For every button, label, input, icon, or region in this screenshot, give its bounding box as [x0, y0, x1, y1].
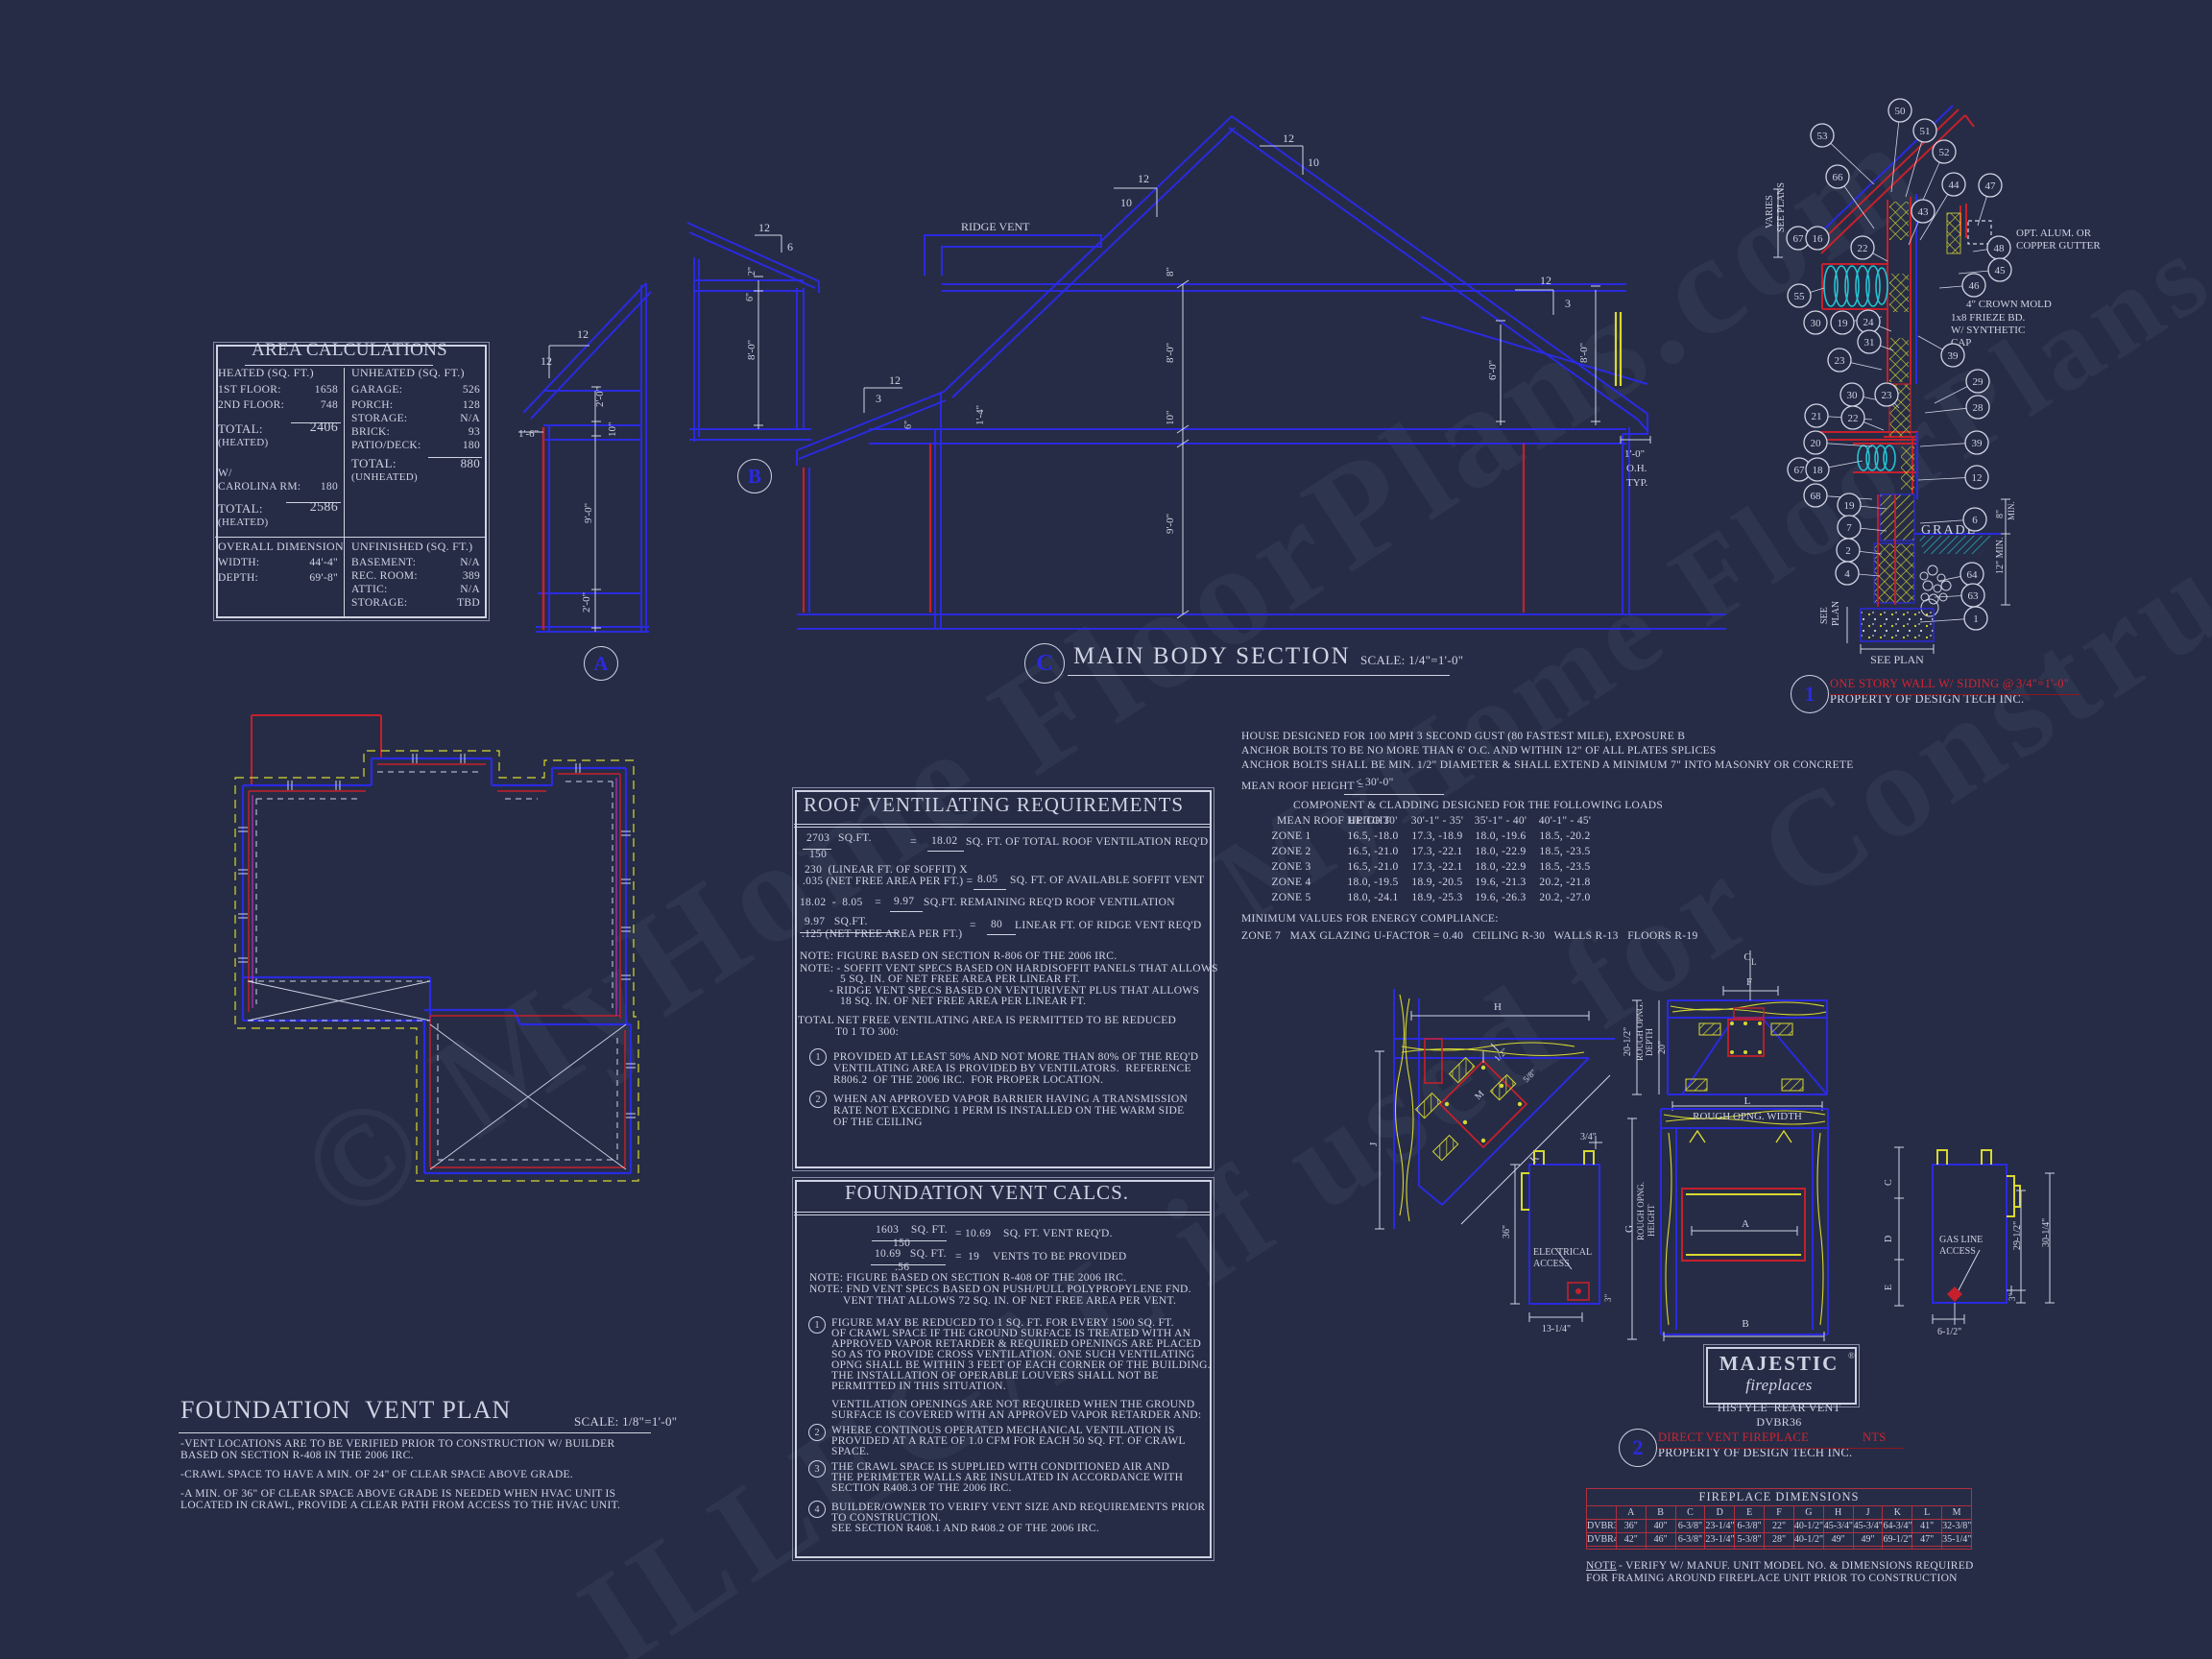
text-label: DEPTH: [218, 572, 258, 584]
text-label: 1ST FLOOR: [218, 384, 281, 396]
rule-line [794, 1214, 1211, 1215]
text-label: SECTION R408.3 OF THE 2006 IRC. [831, 1482, 1012, 1494]
text-label: PATIO/DECK: [351, 440, 421, 451]
detail-c-badge: C [1024, 643, 1065, 684]
cladding-value: 18.0, -19.6 [1475, 830, 1526, 842]
text-label: SQ. FT. OF AVAILABLE SOFFIT VENT [1010, 875, 1204, 886]
text-label: 18 SQ. IN. OF NET FREE AREA PER LINEAR F… [840, 996, 1086, 1007]
cladding-value: 17.3, -18.9 [1411, 830, 1462, 842]
text-label: (HEATED) [218, 438, 269, 449]
cladding-value: 16.5, -21.0 [1347, 861, 1398, 873]
text-label: 93 [469, 426, 480, 438]
text-label: PROVIDED AT LEAST 50% AND NOT MORE THAN … [833, 1051, 1198, 1063]
text-label: 18.02 [931, 835, 957, 847]
circled-number: 3 [808, 1460, 826, 1478]
text-label: ATTIC: [351, 584, 388, 595]
rule-line [1828, 694, 2080, 695]
cladding-col-header: 30'-1" - 35' [1411, 815, 1464, 827]
text-label: SQ.FT. [838, 832, 872, 844]
text-label: BASEMENT: [351, 557, 416, 568]
text-label: TOTAL: [218, 502, 263, 516]
text-label: UNHEATED (SQ. FT.) [351, 367, 465, 379]
text-label: OF THE CEILING [833, 1117, 923, 1128]
text-label: 5 SQ. IN. OF NET FREE AREA PER LINEAR FT… [840, 974, 1080, 985]
text-label: TOTAL: [218, 422, 263, 436]
text-label: TOTAL: [351, 457, 397, 470]
text-label: OVERALL DIMENSION [218, 541, 344, 553]
rule-line [245, 365, 433, 366]
cladding-value: 19.6, -21.3 [1475, 877, 1526, 888]
cladding-value: 18.0, -22.9 [1475, 861, 1526, 873]
text-label: PORCH: [351, 399, 393, 411]
cladding-value: 20.2, -21.8 [1539, 877, 1590, 888]
rule-line [291, 422, 341, 423]
fireplace-model-style: HISTYLE REAR VENT [1718, 1402, 1840, 1414]
cladding-value: 16.5, -18.0 [1347, 830, 1398, 842]
text-label: 9.97 [894, 896, 914, 907]
text-label: = [910, 836, 917, 848]
text-label: 748 [321, 399, 338, 411]
detail-2-badge: 2 [1619, 1429, 1657, 1467]
vent-plan-scale: SCALE: 1/8"=1'-0" [574, 1415, 677, 1429]
cladding-value: 18.5, -23.5 [1539, 846, 1590, 857]
detail-1-badge: 1 [1791, 675, 1829, 713]
text-label: TBD [457, 597, 480, 609]
text-layer: AREA CALCULATIONSHEATED (SQ. FT.)1ST FLO… [0, 0, 2212, 1659]
text-label: 80 [991, 919, 1002, 930]
rule-line [872, 1240, 947, 1241]
text-label: 44'-4" [309, 557, 338, 568]
cladding-value: 18.0, -24.1 [1347, 892, 1398, 903]
text-label: .125 (NET FREE AREA PER FT.) [802, 928, 962, 940]
circled-number: 1 [809, 1048, 827, 1066]
rule-line [987, 934, 1016, 935]
rule-line [215, 537, 485, 538]
fnd-vent-title: FOUNDATION VENT CALCS. [845, 1182, 1129, 1203]
cladding-value: 18.9, -20.5 [1411, 877, 1462, 888]
text-label: = [970, 920, 976, 931]
cladding-zone-label: ZONE 3 [1271, 861, 1310, 873]
text-label: -CRAWL SPACE TO HAVE A MIN. OF 24" OF CL… [180, 1469, 573, 1480]
text-label: < 30'-0" [1356, 777, 1394, 788]
rule-line [794, 824, 1211, 825]
rule-line [794, 827, 1211, 828]
text-label: N/A [460, 413, 480, 424]
text-label: ANCHOR BOLTS TO BE NO MORE THAN 6' O.C. … [1241, 745, 1717, 757]
cladding-value: 18.9, -25.3 [1411, 892, 1462, 903]
text-label: - VERIFY W/ MANUF. UNIT MODEL NO. & DIME… [1619, 1560, 1974, 1572]
text-label: UNFINISHED (SQ. FT.) [351, 541, 472, 553]
circled-number: 1 [808, 1316, 826, 1334]
text-label: NOTE: FIGURE BASED ON SECTION R-806 OF T… [800, 950, 1117, 962]
detail-a-badge: A [584, 646, 618, 681]
majestic-logo-text: MAJESTIC [1719, 1353, 1839, 1374]
text-label: SQ. FT. VENT REQ'D. [1003, 1228, 1113, 1239]
detail-b-badge: B [737, 459, 772, 493]
text-label: -VENT LOCATIONS ARE TO BE VERIFIED PRIOR… [180, 1438, 614, 1450]
text-label: 230 (LINEAR FT. OF SOFFIT) X [805, 864, 968, 876]
rule-line [800, 932, 898, 933]
text-label: 880 [461, 457, 480, 470]
text-label: 2703 [806, 832, 829, 844]
rule-line [428, 457, 482, 458]
vent-plan-title: FOUNDATION VENT PLAN [180, 1397, 511, 1423]
cladding-col-header: 40'-1" - 45' [1539, 815, 1592, 827]
blueprint-sheet: { "theme":{"bg":"#262c46","text":"#cfd3e… [0, 0, 2212, 1659]
roof-vent-title: ROOF VENTILATING REQUIREMENTS [804, 794, 1184, 815]
circled-number: 4 [808, 1501, 826, 1518]
text-label: 180 [321, 481, 338, 493]
text-label: FOR FRAMING AROUND FIREPLACE UNIT PRIOR … [1586, 1573, 1958, 1584]
circled-number: 2 [808, 1424, 826, 1441]
cladding-col-header: UP TO 30' [1348, 815, 1397, 827]
text-label: .035 (NET FREE AREA PER FT.) = [803, 876, 973, 887]
text-label: ® [1848, 1352, 1855, 1360]
cladding-zone-label: ZONE 1 [1271, 830, 1310, 842]
text-label: HEATED (SQ. FT.) [218, 367, 314, 379]
text-label: SQ.FT. REMAINING REQ'D ROOF VENTILATION [924, 897, 1175, 908]
text-label: ANCHOR BOLTS SHALL BE MIN. 1/2" DIAMETER… [1241, 759, 1854, 771]
text-label: LOCATED IN CRAWL, PROVIDE A CLEAR PATH F… [180, 1500, 620, 1511]
text-label: 3/4"=1'-0" [2016, 678, 2069, 690]
text-label: ZONE 7 MAX GLAZING U-FACTOR = 0.40 CEILI… [1241, 930, 1698, 942]
text-label: WIDTH: [218, 557, 259, 568]
text-label: MINIMUM VALUES FOR ENERGY COMPLIANCE: [1241, 913, 1499, 925]
rule-line [286, 502, 341, 503]
text-label: 1658 [315, 384, 338, 396]
cladding-value: 18.5, -23.5 [1539, 861, 1590, 873]
cladding-value: 17.3, -22.1 [1411, 861, 1462, 873]
cladding-value: 18.0, -19.5 [1347, 877, 1398, 888]
text-label: W/ [218, 468, 232, 479]
text-label: LINEAR FT. OF RIDGE VENT REQ'D [1015, 920, 1201, 931]
text-label: 389 [463, 570, 480, 582]
area-calc-title: AREA CALCULATIONS [252, 341, 447, 360]
text-label: -A MIN. OF 36" OF CLEAR SPACE ABOVE GRAD… [180, 1488, 615, 1500]
main-section-scale: SCALE: 1/4"=1'-0" [1360, 654, 1463, 667]
rule-line [179, 1432, 651, 1433]
text-label: 1603 SQ. FT. [876, 1224, 948, 1236]
text-label: 9.97 SQ.FT. [805, 916, 868, 927]
text-label: WHEN AN APPROVED VAPOR BARRIER HAVING A … [833, 1094, 1188, 1105]
text-label: GARAGE: [351, 384, 402, 396]
cladding-col-header: 35'-1" - 40' [1475, 815, 1527, 827]
text-label: = 19 [955, 1251, 979, 1262]
cladding-value: 16.5, -21.0 [1347, 846, 1398, 857]
text-label: BASED ON SECTION R-408 IN THE 2006 IRC. [180, 1450, 414, 1461]
text-label: N/A [460, 557, 480, 568]
text-label: BRICK: [351, 426, 390, 438]
text-label: (UNHEATED) [351, 472, 418, 484]
text-label: 10.69 SQ. FT. [875, 1248, 947, 1260]
text-label: NOTE: FIGURE BASED ON SECTION R-408 OF T… [809, 1272, 1126, 1284]
fireplace-detail-title: DIRECT VENT FIREPLACE [1658, 1431, 1809, 1444]
cladding-value: 18.5, -20.2 [1539, 830, 1590, 842]
wall-detail-title: ONE STORY WALL W/ SIDING @ [1830, 678, 2014, 690]
text-label: MEAN ROOF HEIGHT = [1241, 781, 1364, 792]
rule-line [1656, 1448, 1904, 1449]
text-label: 18.02 - 8.05 = [800, 897, 881, 908]
text-label: VENTILATING AREA IS PROVIDED BY VENTILAT… [833, 1063, 1191, 1074]
text-label: NOTE: FND VENT SPECS BASED ON PUSH/PULL … [809, 1284, 1191, 1295]
rule-line [1068, 675, 1450, 676]
cladding-value: 18.0, -22.9 [1475, 846, 1526, 857]
text-label: T0 1 TO 300: [835, 1026, 899, 1038]
fireplace-model-number: DVBR36 [1756, 1416, 1801, 1429]
rule-line [803, 849, 831, 850]
rule-line [794, 1212, 1211, 1213]
cladding-zone-label: ZONE 4 [1271, 877, 1310, 888]
cladding-zone-label: ZONE 5 [1271, 892, 1310, 903]
text-label: SURFACE IS COVERED WITH AN APPROVED VAPO… [831, 1409, 1201, 1421]
rule-line [927, 851, 964, 852]
rule-line [871, 1264, 946, 1265]
cladding-value: 20.2, -27.0 [1539, 892, 1590, 903]
text-label: NTS [1863, 1431, 1887, 1444]
text-label: VENTS TO BE PROVIDED [993, 1251, 1126, 1262]
text-label: 2ND FLOOR: [218, 399, 284, 411]
text-label: STORAGE: [351, 413, 407, 424]
text-label: HOUSE DESIGNED FOR 100 MPH 3 SECOND GUST… [1241, 731, 1685, 742]
text-label: 180 [463, 440, 480, 451]
text-label: 526 [463, 384, 480, 396]
text-label: = 10.69 [955, 1228, 991, 1239]
text-label: 8.05 [977, 874, 998, 885]
text-label: PROVIDED AT A RATE OF 1.0 CFM FOR EACH 5… [831, 1435, 1186, 1447]
text-label: SPACE. [831, 1446, 869, 1457]
text-label: COMPONENT & CLADDING DESIGNED FOR THE FO… [1293, 800, 1663, 811]
cladding-value: 17.3, -22.1 [1411, 846, 1462, 857]
text-label: SQ. FT. OF TOTAL ROOF VENTILATION REQ'D [966, 836, 1208, 848]
text-label: (HEATED) [218, 517, 269, 529]
rule-line [344, 368, 345, 616]
text-label: VENT THAT ALLOWS 72 SQ. IN. OF NET FREE … [843, 1295, 1176, 1307]
text-label: CAROLINA RM: [218, 481, 301, 493]
text-label: R806.2 OF THE 2006 IRC. FOR PROPER LOCAT… [833, 1074, 1103, 1086]
text-label: TOTAL NET FREE VENTILATING AREA IS PERMI… [798, 1015, 1176, 1026]
text-label: N/A [460, 584, 480, 595]
text-label: 128 [463, 399, 480, 411]
text-label: STORAGE: [351, 597, 407, 609]
text-label: 69'-8" [309, 572, 338, 584]
cladding-zone-label: ZONE 2 [1271, 846, 1310, 857]
rule-line [974, 889, 1006, 890]
text-label: RATE NOT EXCEDING 1 PERM IS INSTALLED ON… [833, 1105, 1184, 1117]
text-label: NOTE [1586, 1560, 1617, 1572]
text-label: SEE SECTION R408.1 AND R408.2 OF THE 200… [831, 1523, 1099, 1534]
circled-number: 2 [809, 1091, 827, 1108]
rule-line [1344, 794, 1444, 795]
main-section-title: MAIN BODY SECTION [1073, 644, 1351, 669]
rule-line [890, 911, 923, 912]
text-label: PERMITTED IN THIS SITUATION. [831, 1381, 1006, 1392]
text-label: REC. ROOM: [351, 570, 418, 582]
cladding-value: 19.6, -26.3 [1475, 892, 1526, 903]
majestic-logo-script: fireplaces [1745, 1377, 1812, 1394]
